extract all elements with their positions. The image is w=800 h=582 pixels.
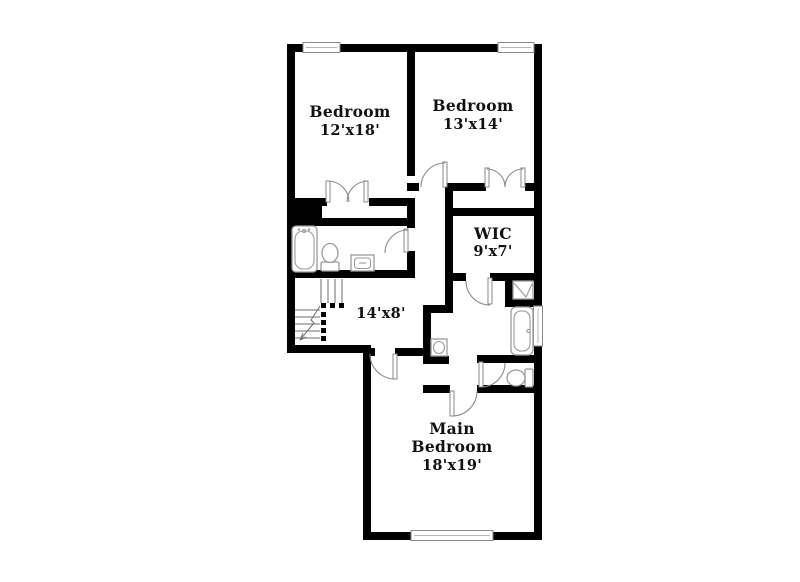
door-arc (421, 163, 445, 187)
wic-label: WIC (473, 224, 512, 243)
sink-vanity (351, 255, 374, 271)
wall-wic-left (445, 183, 453, 312)
wall-bedroom2-bottom-c (525, 183, 534, 191)
main-bedroom-label-2: Bedroom (411, 437, 492, 456)
wall-wic-top (453, 208, 534, 216)
doors (326, 162, 525, 416)
door-arc (481, 363, 505, 387)
hall-dims: 14'x8' (356, 305, 406, 322)
door-leaf (485, 168, 489, 187)
door-arc (370, 354, 395, 379)
wall-hall-bottom-b (395, 348, 431, 356)
wall-right (534, 44, 542, 540)
wall-shower-bottom (505, 299, 534, 307)
door-leaf (326, 181, 330, 202)
staircase (295, 279, 344, 341)
wall-left-lower (363, 345, 371, 540)
toilet (321, 244, 339, 272)
sink-vanity-main (431, 339, 447, 356)
wall-hall-bottom-a (371, 348, 375, 356)
door-leaf (479, 362, 483, 387)
bedroom1-dims: 12'x18' (320, 122, 380, 139)
toilet-main (507, 369, 533, 387)
wall-vanity-alcove (423, 356, 449, 364)
wall-bedroom2-bottom-a (407, 183, 419, 191)
door-arc (487, 169, 505, 187)
wall-chase (287, 198, 322, 226)
door-arc (328, 181, 349, 202)
bedroom1-label: Bedroom (309, 102, 390, 121)
door-leaf (393, 354, 397, 379)
bedroom2-dims: 13'x14' (443, 116, 503, 133)
door-leaf (521, 168, 525, 187)
bathtub-main (511, 307, 533, 355)
floor-plan-page: Bedroom 12'x18' Bedroom 13'x14' WIC 9'x7… (0, 0, 800, 582)
door-arc (505, 169, 523, 187)
main-bedroom-dims: 18'x19' (422, 457, 482, 474)
main-bedroom-label-1: Main (429, 419, 475, 438)
wall-shower-side (505, 273, 513, 303)
door-leaf (443, 162, 447, 187)
bedroom2-label: Bedroom (432, 96, 513, 115)
door-leaf (404, 229, 408, 252)
door-leaf (364, 181, 368, 202)
wic-dims: 9'x7' (473, 243, 512, 260)
stair-railing (321, 303, 344, 341)
shower (513, 281, 533, 299)
wall-bath1-top (322, 218, 415, 226)
wall-bedroom-divider (407, 52, 415, 176)
wall-bath1-right-a (407, 206, 415, 228)
stair-direction-line (300, 306, 320, 340)
door-leaf (488, 278, 492, 304)
door-arc (466, 281, 490, 305)
bathtub (292, 226, 317, 272)
wall-toilet-room-top (485, 355, 534, 363)
wall-step (287, 345, 371, 353)
floor-plan-svg: Bedroom 12'x18' Bedroom 13'x14' WIC 9'x7… (0, 0, 800, 582)
wall-wic-bottom-a (453, 273, 466, 281)
door-leaf (450, 391, 454, 416)
door-arc (452, 391, 477, 416)
wall-bath2-bottom-a (423, 385, 450, 393)
wall-bedroom1-bottom-right (369, 198, 415, 206)
